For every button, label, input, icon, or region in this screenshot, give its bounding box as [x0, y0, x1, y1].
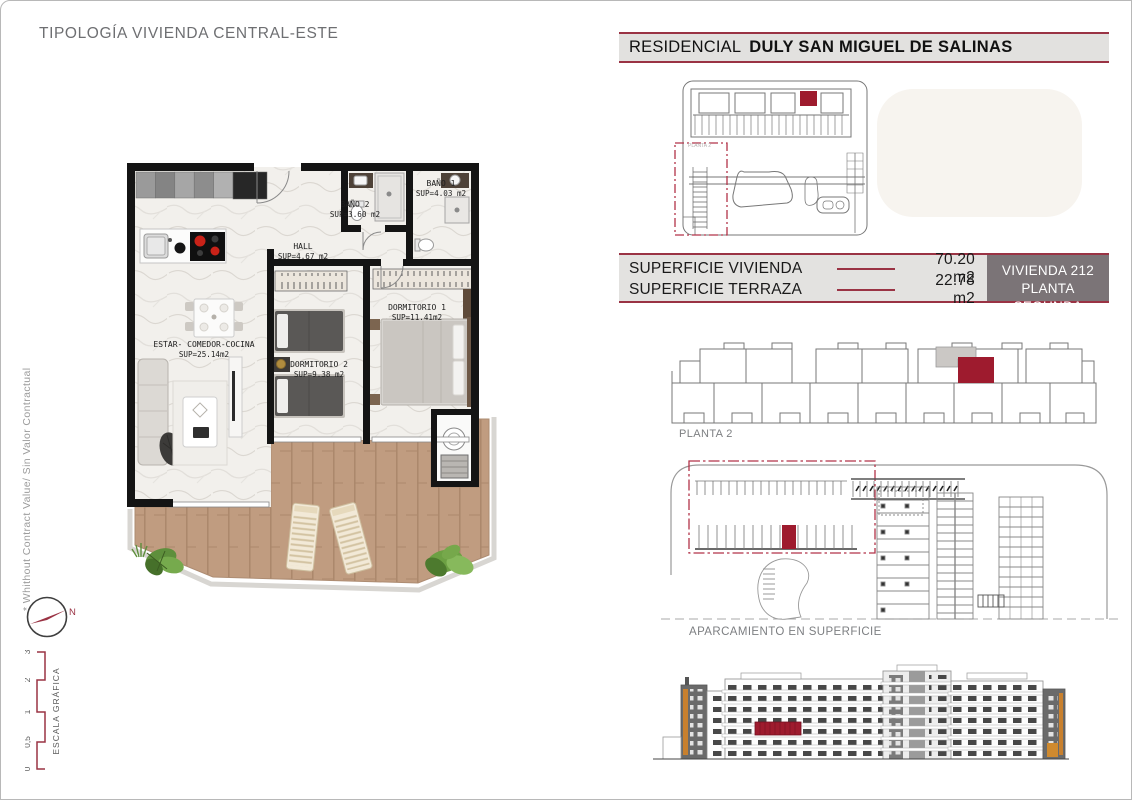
room-label-hall: HALL — [293, 242, 312, 251]
brochure-page: TIPOLOGÍA VIVIENDA CENTRAL-ESTE * Whitho… — [0, 0, 1132, 800]
planta2-highlight-unit — [958, 357, 994, 383]
ramp-shape — [758, 559, 809, 619]
surface-label: SUPERFICIE VIVIENDA — [629, 260, 837, 278]
svg-text:3: 3 — [25, 649, 32, 654]
svg-text:2: 2 — [25, 677, 32, 682]
room-label-bano2: BAÑO 2 — [341, 199, 370, 209]
planta2-label: PLANTA 2 — [679, 428, 733, 440]
scale-bar-line — [37, 652, 45, 769]
moto-row — [851, 479, 965, 499]
bed-double — [369, 317, 475, 407]
site-plan-diagram: PLANTA 2 — [669, 77, 1089, 241]
svg-text:SUP=25.14m2: SUP=25.14m2 — [179, 350, 229, 359]
bed-single-1 — [273, 309, 345, 353]
svg-text:0,5: 0,5 — [25, 736, 32, 748]
graphic-scale: 0 0,5 1 2 3 ESCALA GRÁFICA — [25, 647, 89, 779]
parking-row-mid — [695, 525, 857, 549]
surface-table: SUPERFICIE VIVIENDA 70.20 m2 SUPERFICIE … — [619, 255, 987, 301]
main-facade-right — [948, 673, 1046, 759]
nightstand — [273, 357, 290, 372]
page-title: TIPOLOGÍA VIVIENDA CENTRAL-ESTE — [39, 25, 338, 43]
kitchen-counter — [140, 229, 226, 263]
main-facade-left — [722, 673, 886, 759]
floorplan-drawing: HALL SUP=4.67 m2 BAÑO 2 SUP=3.60 m2 BAÑO… — [123, 153, 508, 597]
header-project-name: DULY SAN MIGUEL DE SALINAS — [749, 38, 1012, 57]
room-label-estar: ESTAR- COMEDOR-COCINA — [153, 340, 254, 349]
svg-text:SUP=11.41m2: SUP=11.41m2 — [392, 313, 442, 322]
svg-text:SUP=4.67 m2: SUP=4.67 m2 — [278, 252, 328, 261]
site-lawn-area — [877, 89, 1082, 217]
parking-boundary — [671, 465, 1107, 619]
unit-number: VIVIENDA 212 — [987, 262, 1109, 280]
room-label-bano1: BAÑO 1 — [427, 178, 456, 188]
surface-info: SUPERFICIE VIVIENDA 70.20 m2 SUPERFICIE … — [619, 253, 1109, 303]
left-tower — [663, 677, 725, 759]
parking-diagram — [661, 453, 1119, 625]
wardrobe-dorm2 — [275, 271, 347, 291]
surface-value: 22.78 m2 — [909, 272, 979, 308]
parking-highlight-space — [782, 525, 796, 549]
project-header: RESIDENCIAL DULY SAN MIGUEL DE SALINAS — [619, 32, 1109, 63]
bed-single-2 — [273, 374, 345, 418]
planta2-diagram — [666, 331, 1106, 431]
svg-text:1: 1 — [25, 709, 32, 714]
unit-floor: PLANTA SEGUNDA — [987, 280, 1109, 316]
room-label-dorm1: DORMITORIO 1 — [388, 303, 446, 312]
maroon-dash — [837, 289, 895, 291]
surface-row: SUPERFICIE TERRAZA 22.78 m2 — [629, 279, 979, 300]
header-prefix: RESIDENCIAL — [629, 38, 741, 57]
compass-north-label: N — [69, 607, 76, 618]
room-label-dorm2: DORMITORIO 2 — [290, 360, 348, 369]
tv-bench — [229, 357, 242, 437]
site-plan-tiny-label: PLANTA 2 — [688, 143, 711, 149]
scale-label: ESCALA GRÁFICA — [51, 667, 61, 754]
building-structures — [877, 487, 1043, 619]
kitchen-cabinets — [136, 172, 267, 199]
compass-icon: N — [23, 593, 79, 641]
parking-label: APARCAMIENTO EN SUPERFICIE — [689, 626, 882, 638]
elevation-highlight-unit — [755, 722, 801, 735]
elevation-diagram — [651, 649, 1071, 767]
svg-text:SUP=3.60 m2: SUP=3.60 m2 — [330, 210, 380, 219]
center-block — [881, 665, 953, 759]
maroon-dash — [837, 268, 895, 270]
parking-row-top — [695, 481, 847, 495]
svg-text:SUP=4.03 m2: SUP=4.03 m2 — [416, 189, 466, 198]
coffee-table — [173, 381, 227, 465]
site-highlight-unit — [800, 91, 817, 106]
unit-badge: VIVIENDA 212 PLANTA SEGUNDA — [987, 255, 1109, 301]
surface-label: SUPERFICIE TERRAZA — [629, 281, 837, 299]
svg-text:SUP=9.38 m2: SUP=9.38 m2 — [294, 370, 344, 379]
dining-table — [185, 299, 243, 337]
right-tower — [1043, 689, 1065, 759]
disclaimer-note: * Whithout Contract Value/ Sin Valor Con… — [21, 339, 37, 611]
svg-text:0: 0 — [25, 766, 32, 771]
